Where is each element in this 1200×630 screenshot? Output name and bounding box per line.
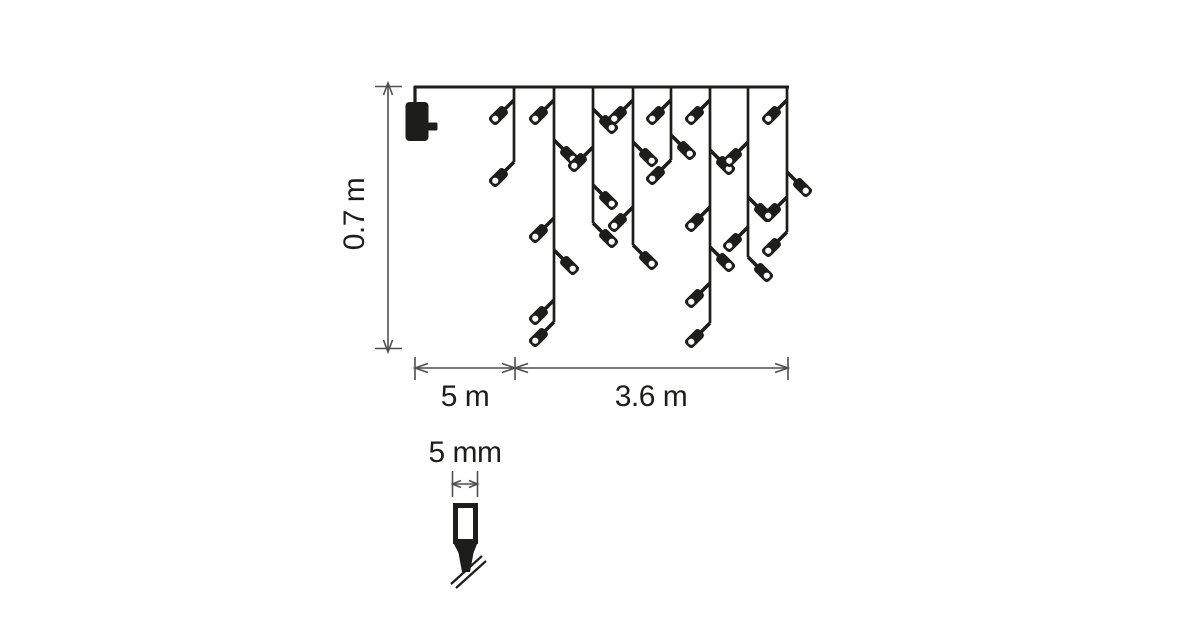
light-string <box>406 86 814 350</box>
plug-body <box>406 102 429 141</box>
bulb-drawing <box>451 506 486 589</box>
light-drop <box>760 86 813 259</box>
lights-length-label: 3.6 m <box>615 380 688 413</box>
light-drop <box>527 86 580 349</box>
light-drops <box>487 86 813 350</box>
led-bulb <box>629 241 659 271</box>
icicle-diagram: 0.7 m 5 m 3.6 m 5 mm <box>0 0 1200 630</box>
led-bulb <box>744 253 774 283</box>
bulb-width-label: 5 mm <box>429 436 502 469</box>
led-bulb <box>487 158 517 188</box>
height-dimension-label: 0.7 m <box>338 178 371 251</box>
led-bulb <box>683 319 713 349</box>
bulb-glass <box>456 506 476 542</box>
light-drop <box>683 86 736 350</box>
light-drop <box>487 86 517 189</box>
diagram-canvas: 0.7 m 5 m 3.6 m 5 mm <box>0 0 1200 630</box>
plug-prong <box>428 123 438 131</box>
bulb-socket <box>454 544 477 572</box>
led-bulb <box>760 228 790 258</box>
light-drop <box>644 86 697 187</box>
bulb-detail-dimension <box>453 471 478 497</box>
lead-length-label: 5 m <box>441 380 490 413</box>
height-dimension: 0.7 m <box>338 83 402 352</box>
power-plug <box>406 86 438 141</box>
bulb-detail: 5 mm <box>429 436 502 588</box>
width-dimensions: 5 m 3.6 m <box>415 357 788 413</box>
